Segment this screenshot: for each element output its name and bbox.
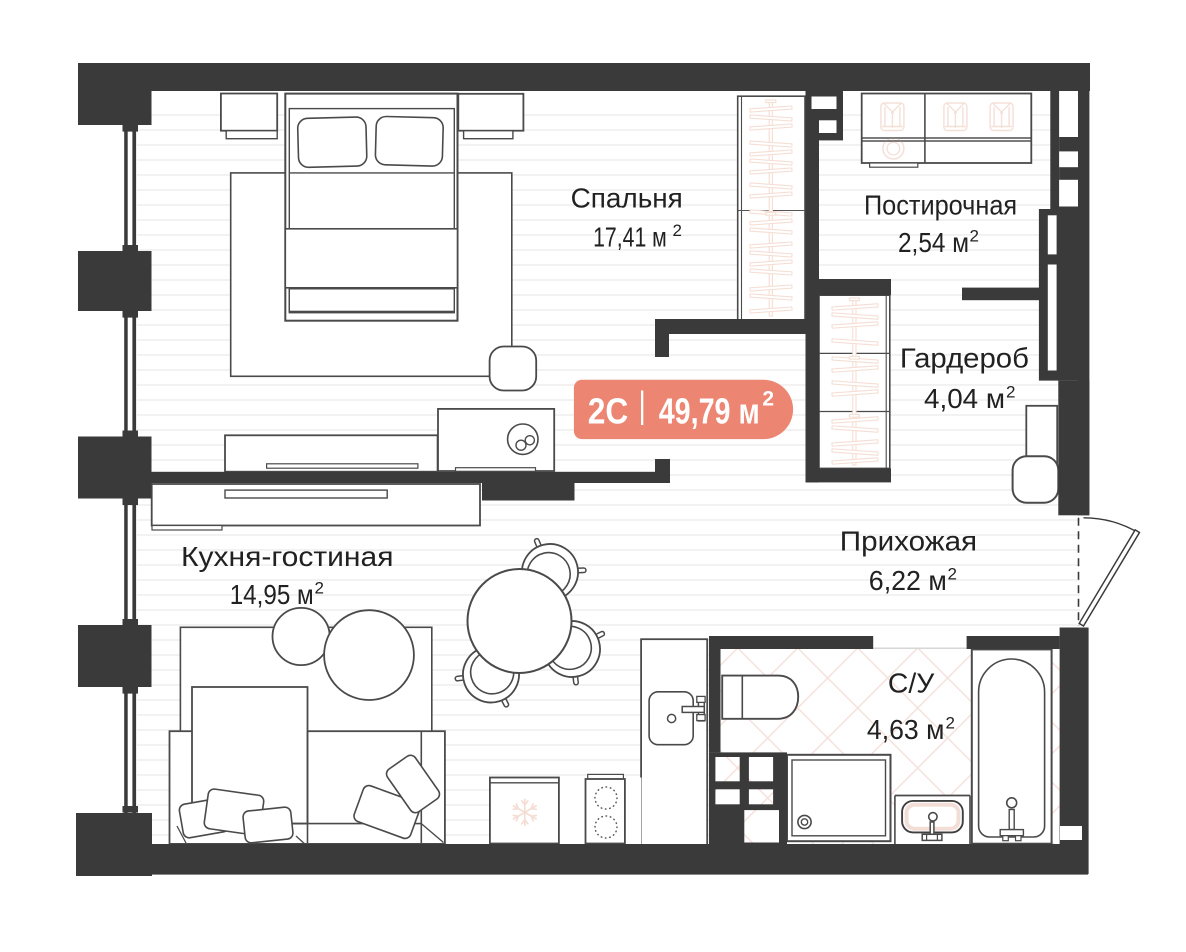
- svg-text:Постирочная: Постирочная: [864, 190, 1017, 221]
- svg-text:2: 2: [946, 714, 955, 733]
- svg-text:17,41 м: 17,41 м: [593, 222, 667, 253]
- svg-text:2: 2: [315, 579, 324, 598]
- svg-text:2: 2: [948, 565, 957, 584]
- svg-text:4,63 м: 4,63 м: [867, 714, 945, 745]
- svg-text:2: 2: [673, 221, 682, 240]
- svg-text:2: 2: [1006, 383, 1015, 402]
- svg-text:Гардероб: Гардероб: [900, 343, 1029, 374]
- svg-text:2,54 м: 2,54 м: [898, 227, 969, 258]
- svg-text:Кухня-гостиная: Кухня-гостиная: [181, 541, 394, 572]
- svg-text:14,95 м: 14,95 м: [230, 579, 314, 610]
- svg-text:Спальня: Спальня: [571, 183, 683, 214]
- svg-text:4,04 м: 4,04 м: [924, 383, 1005, 414]
- svg-text:2: 2: [970, 227, 979, 246]
- svg-text:Прихожая: Прихожая: [840, 526, 977, 557]
- svg-text:2C: 2C: [588, 391, 629, 432]
- svg-text:С/У: С/У: [888, 668, 935, 699]
- svg-text:49,79 м: 49,79 м: [659, 391, 760, 432]
- svg-text:6,22 м: 6,22 м: [869, 565, 947, 596]
- svg-text:2: 2: [762, 388, 774, 411]
